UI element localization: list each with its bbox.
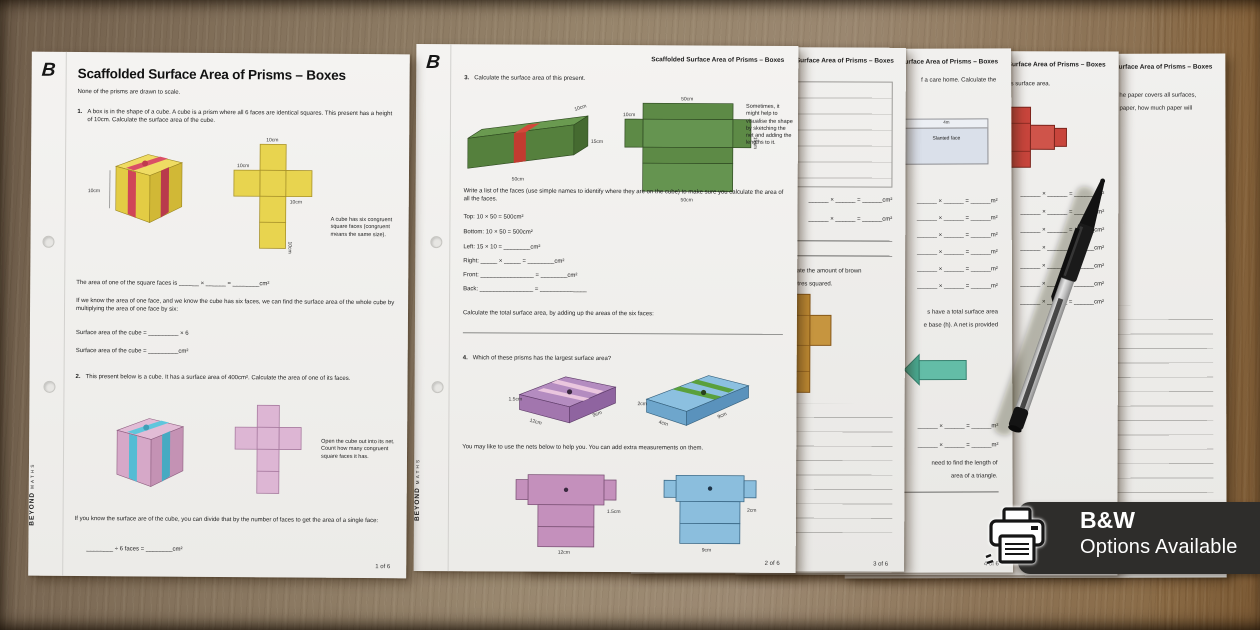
q2-answer-line: ________ ÷ 6 faces = ________cm²: [86, 546, 182, 555]
page4-text-fragment: s have a total surface area: [927, 309, 998, 317]
page6-text-fragment: paper, how much paper will: [1119, 106, 1192, 114]
q1-surface-area-line: Surface area of the cube = _________ × 6: [76, 330, 189, 339]
blue-present-figure: 2cm 4cm 9cm: [636, 363, 756, 434]
question-number: 1.: [77, 109, 82, 125]
q1-surface-area-line: Surface area of the cube = _________cm²: [76, 348, 189, 357]
green-net-left-label: 10cm: [623, 112, 635, 118]
purple-box-front-label: 12cm: [529, 418, 542, 427]
page4-equation-line: ______ × ______ = ______m²: [917, 198, 998, 204]
punch-hole: [43, 381, 55, 393]
page4-equation-line: ______ × ______ = ______m²: [917, 249, 998, 255]
question-2: 2. This present below is a cube. It has …: [76, 374, 396, 384]
slanted-face-diagram: 4m Slanted face: [904, 118, 988, 164]
page4-equation-line: ______ × ______ = ______m²: [917, 232, 998, 238]
question-number: 3.: [464, 75, 469, 83]
beyond-logo: B: [425, 52, 440, 74]
blue-box-side-label: 9cm: [717, 411, 728, 420]
blue-box-front-label: 4cm: [658, 419, 669, 427]
q1-hint-note: A cube has six congruent square faces (c…: [331, 217, 399, 239]
q1-area-line: The area of one of the square faces is _…: [76, 280, 269, 289]
page2-header: Scaffolded Surface Area of Prisms – Boxe…: [651, 56, 784, 65]
diagram-face-label: Slanted face: [905, 135, 987, 142]
page4-equation-line: ______ × ______ = ______m²: [917, 283, 998, 289]
page3-equation-line: ______ × ______ = ______cm²: [809, 216, 893, 222]
blue-net-bottom-label: 9cm: [702, 548, 711, 554]
question-number: 2.: [76, 374, 81, 382]
beyond-edge-text: BEYONDMATHS: [406, 458, 424, 521]
purple-present-figure: 1.5cm 12cm 9cm: [507, 366, 627, 431]
q3-instructions: Write a list of the faces (use simple na…: [464, 188, 784, 205]
page4-text-fragment: f a care home. Calculate the: [921, 77, 996, 85]
purple-net-side-label: 1.5cm: [607, 509, 621, 515]
q1-paragraph: If we know the area of one face, and we …: [76, 298, 398, 316]
face-calculation-line: Top: 10 × 50 = 500cm²: [463, 214, 523, 222]
face-calculation-line: Front: ________________ = ________cm²: [463, 272, 577, 281]
green-box-depth-label: 10cm: [574, 103, 587, 112]
badge-subtitle: Options Available: [1080, 536, 1238, 559]
page4-text-fragment: area of a triangle.: [951, 473, 998, 481]
q3-answer-line: [463, 332, 783, 335]
ballpoint-pen: [1048, 168, 1260, 488]
red-prism-net-figure: [1004, 105, 1070, 169]
worksheet-subtitle: None of the prisms are drawn to scale.: [78, 89, 181, 98]
blue-present-net-figure: 2cm 9cm: [652, 465, 767, 554]
question-number: 4.: [463, 355, 468, 363]
pink-cube-net-figure: [224, 401, 315, 514]
page6-text-fragment: he paper covers all surfaces,: [1119, 93, 1196, 101]
question-text: A box is in the shape of a cube. A cube …: [87, 109, 397, 127]
question-text: Calculate the surface area of this prese…: [474, 75, 585, 83]
worksheet-page-2: B BEYONDMATHS Scaffolded Surface Area of…: [414, 44, 799, 573]
q2-paragraph: If you know the surface are of the cube,…: [75, 516, 397, 526]
q3-hint-note: Sometimes, it might help to visualise th…: [746, 104, 794, 148]
purple-present-net-figure: 1.5cm 12cm: [506, 460, 626, 556]
net-label-right: 10cm: [290, 199, 302, 205]
yellow-cube-height-label: 10cm: [88, 188, 100, 194]
page5-text-fragment: s surface area.: [1011, 81, 1051, 89]
page4-equation-line: ______ × ______ = ______m²: [918, 442, 999, 448]
q4-instructions: You may like to use the nets below to he…: [462, 444, 787, 454]
blue-box-height-label: 2cm: [637, 401, 646, 407]
question-text: This present below is a cube. It has a s…: [86, 374, 351, 384]
badge-title: B&W: [1080, 507, 1135, 534]
page3-equation-line: ______ × ______ = ______cm²: [809, 197, 893, 203]
worksheet-title: Scaffolded Surface Area of Prisms – Boxe…: [78, 65, 346, 85]
green-net-top-label: 50cm: [681, 96, 693, 102]
printer-icon: [985, 506, 1049, 568]
face-calculation-line: Bottom: 10 × 50 = 500cm²: [463, 229, 532, 237]
green-box-height-label: 15cm: [591, 139, 603, 145]
question-text: Which of these prisms has the largest su…: [473, 355, 611, 364]
purple-net-bottom-label: 12cm: [558, 550, 570, 556]
beyond-edge-text: BEYONDMATHS: [21, 462, 39, 525]
page4-text-fragment: need to find the length of: [931, 460, 997, 468]
page3-page-number: 3 of 6: [873, 562, 888, 568]
face-calculation-line: Back: ________________ = ______________: [463, 286, 587, 295]
page2-page-number: 2 of 6: [765, 561, 780, 567]
net-label-left: 10cm: [237, 163, 249, 169]
face-calculation-line: Right: _____ × _____ = ________cm²: [463, 258, 564, 266]
pink-present-figure: [87, 402, 208, 498]
page4-text-fragment: e base (h). A net is provided: [924, 322, 998, 330]
page4-answer-line: [903, 491, 999, 492]
worksheet-preview-scene[interactable]: Scaffolded Surface Area of Prisms – Boxe…: [0, 0, 1260, 630]
yellow-present-figure: 10cm: [86, 136, 207, 237]
worksheet-page-1: B BEYONDMATHS Scaffolded Surface Area of…: [28, 52, 410, 579]
beyond-logo: B: [41, 60, 56, 82]
punch-hole: [42, 236, 54, 248]
punch-hole: [430, 236, 442, 248]
net-label-top: 10cm: [266, 137, 278, 143]
q3-total-instruction: Calculate the total surface area, by add…: [463, 310, 783, 320]
margin-line: [62, 52, 67, 576]
page3-text-fragment: culate the amount of brown: [789, 268, 861, 276]
net-label-bottom: 10cm: [286, 241, 292, 253]
blue-net-side-label: 2cm: [747, 508, 756, 514]
margin-line: [448, 44, 452, 571]
question-1: 1. A box is in the shape of a cube. A cu…: [77, 109, 397, 127]
page4-equation-line: ______ × ______ = ______m²: [917, 266, 998, 272]
question-3: 3. Calculate the surface area of this pr…: [464, 75, 784, 85]
green-present-figure: 10cm 15cm 50cm: [454, 96, 604, 189]
diagram-top-label: 4m: [905, 119, 987, 128]
face-calculation-line: Left: 15 × 10 = ________cm²: [463, 244, 540, 252]
bw-options-badge: B&W Options Available: [1018, 502, 1260, 574]
yellow-cube-net-figure: 10cm 10cm 10cm 10cm: [220, 133, 326, 274]
page4-equation-line: ______ × ______ = ______m²: [918, 423, 999, 429]
purple-box-height-label: 1.5cm: [509, 396, 523, 402]
page1-page-number: 1 of 6: [375, 564, 390, 570]
teal-prism-net-figure: [902, 352, 970, 386]
page4-equation-line: ______ × ______ = ______m²: [917, 215, 998, 221]
punch-hole: [432, 381, 444, 393]
q2-hint-note: Open the cube out into its net. Count ho…: [321, 439, 397, 461]
green-box-length-label: 50cm: [512, 177, 524, 183]
